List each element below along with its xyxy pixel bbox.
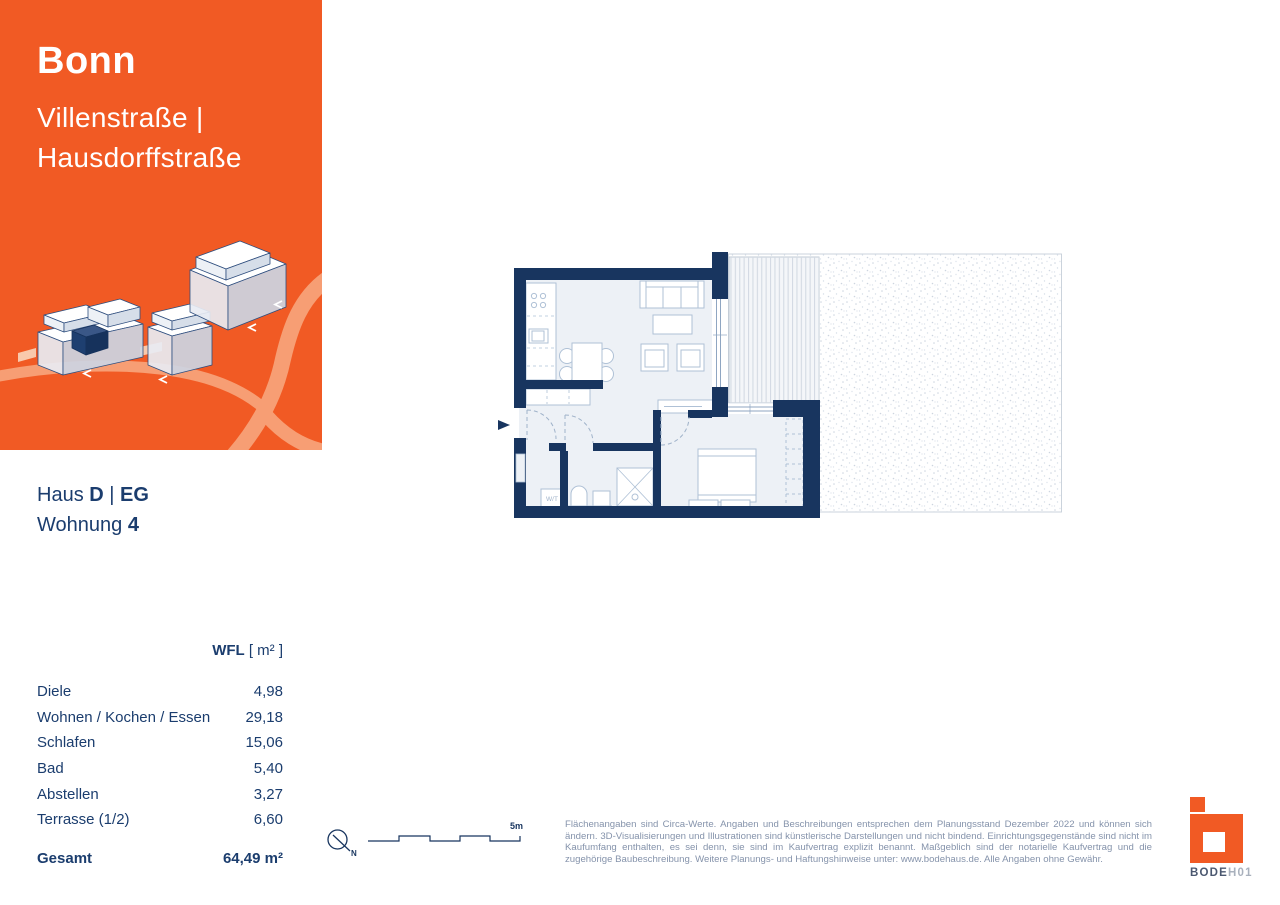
table-row: Bad5,40	[37, 756, 283, 782]
area-table: WFL [ m² ] Diele4,98 Wohnen / Kochen / E…	[37, 642, 283, 871]
washbasin-icon	[571, 486, 587, 506]
table-row: Wohnen / Kochen / Essen29,18	[37, 705, 283, 731]
table-row: Diele4,98	[37, 679, 283, 705]
table-total-row: Gesamt64,49 m²	[37, 846, 283, 871]
wall-niche	[516, 454, 525, 482]
bed	[689, 449, 756, 510]
disclaimer-text: Flächenangaben sind Circa-Werte. Angaben…	[565, 819, 1152, 865]
entrance-arrow-icon	[498, 420, 510, 430]
street-line-1: Villenstraße |	[37, 98, 242, 138]
terrace	[729, 257, 819, 403]
scale-label: 5m	[510, 821, 523, 831]
sofa	[640, 281, 704, 308]
shower-icon	[617, 468, 653, 506]
table-row: Terrasse (1/2)6,60	[37, 807, 283, 833]
floor-plan: W/T	[495, 245, 1075, 525]
coffee-table	[653, 315, 692, 334]
north-indicator-icon	[328, 830, 350, 851]
area-table-header: WFL [ m² ]	[37, 642, 283, 662]
city-title: Bonn	[37, 40, 136, 83]
north-label: N	[351, 849, 357, 858]
logo-square-icon	[1190, 814, 1243, 863]
logo-wordmark: BODEH01	[1190, 867, 1253, 879]
toilet-icon	[593, 491, 610, 506]
scale-bar	[368, 836, 520, 841]
project-header-panel: Bonn Villenstraße | Hausdorffstraße	[0, 0, 322, 450]
washer-dryer-label: W/T	[546, 496, 558, 503]
street-line-2: Hausdorffstraße	[37, 138, 242, 178]
haus-line: Haus D | EG	[37, 480, 149, 510]
table-row: Schlafen15,06	[37, 730, 283, 756]
unit-info: Haus D | EG Wohnung 4	[37, 480, 149, 540]
building-right	[190, 241, 286, 330]
wohnung-line: Wohnung 4	[37, 510, 149, 540]
logo-dot-icon	[1190, 797, 1205, 812]
plan-legend: N 5m	[325, 818, 535, 863]
site-plan-illustration	[0, 235, 322, 450]
table-row: Abstellen3,27	[37, 781, 283, 807]
street-address: Villenstraße | Hausdorffstraße	[37, 98, 242, 178]
